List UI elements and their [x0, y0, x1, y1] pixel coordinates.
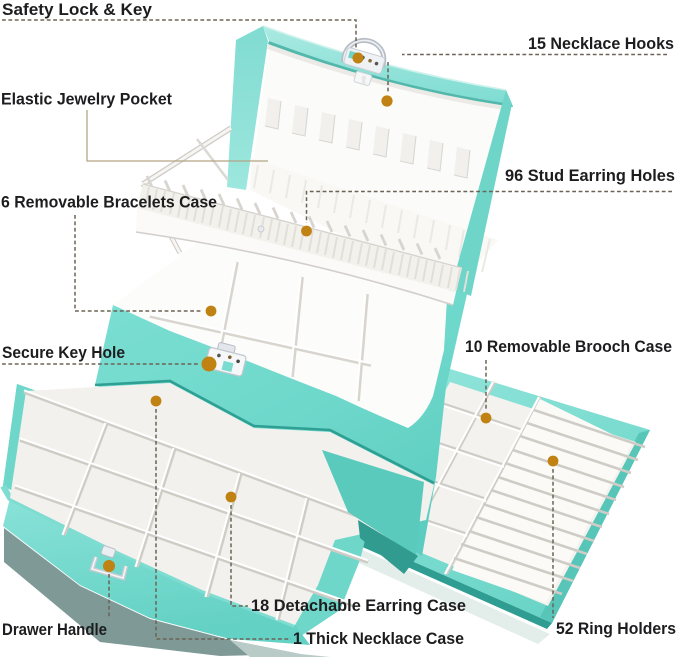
- svg-text:15 Necklace Hooks: 15 Necklace Hooks: [528, 34, 674, 53]
- svg-text:18 Detachable Earring Case: 18 Detachable Earring Case: [251, 596, 466, 615]
- svg-text:Elastic Jewelry Pocket: Elastic Jewelry Pocket: [1, 90, 172, 109]
- svg-text:52 Ring Holders: 52 Ring Holders: [556, 619, 676, 638]
- svg-text:Safety Lock & Key: Safety Lock & Key: [2, 0, 153, 19]
- svg-text:Drawer Handle: Drawer Handle: [2, 620, 107, 639]
- svg-text:10 Removable Brooch Case: 10 Removable Brooch Case: [465, 337, 672, 356]
- svg-text:96 Stud Earring Holes: 96 Stud Earring Holes: [505, 166, 675, 185]
- svg-text:6 Removable Bracelets Case: 6 Removable Bracelets Case: [1, 193, 217, 212]
- svg-text:1 Thick Necklace Case: 1 Thick Necklace Case: [293, 629, 464, 648]
- svg-text:Secure Key Hole: Secure Key Hole: [2, 343, 125, 362]
